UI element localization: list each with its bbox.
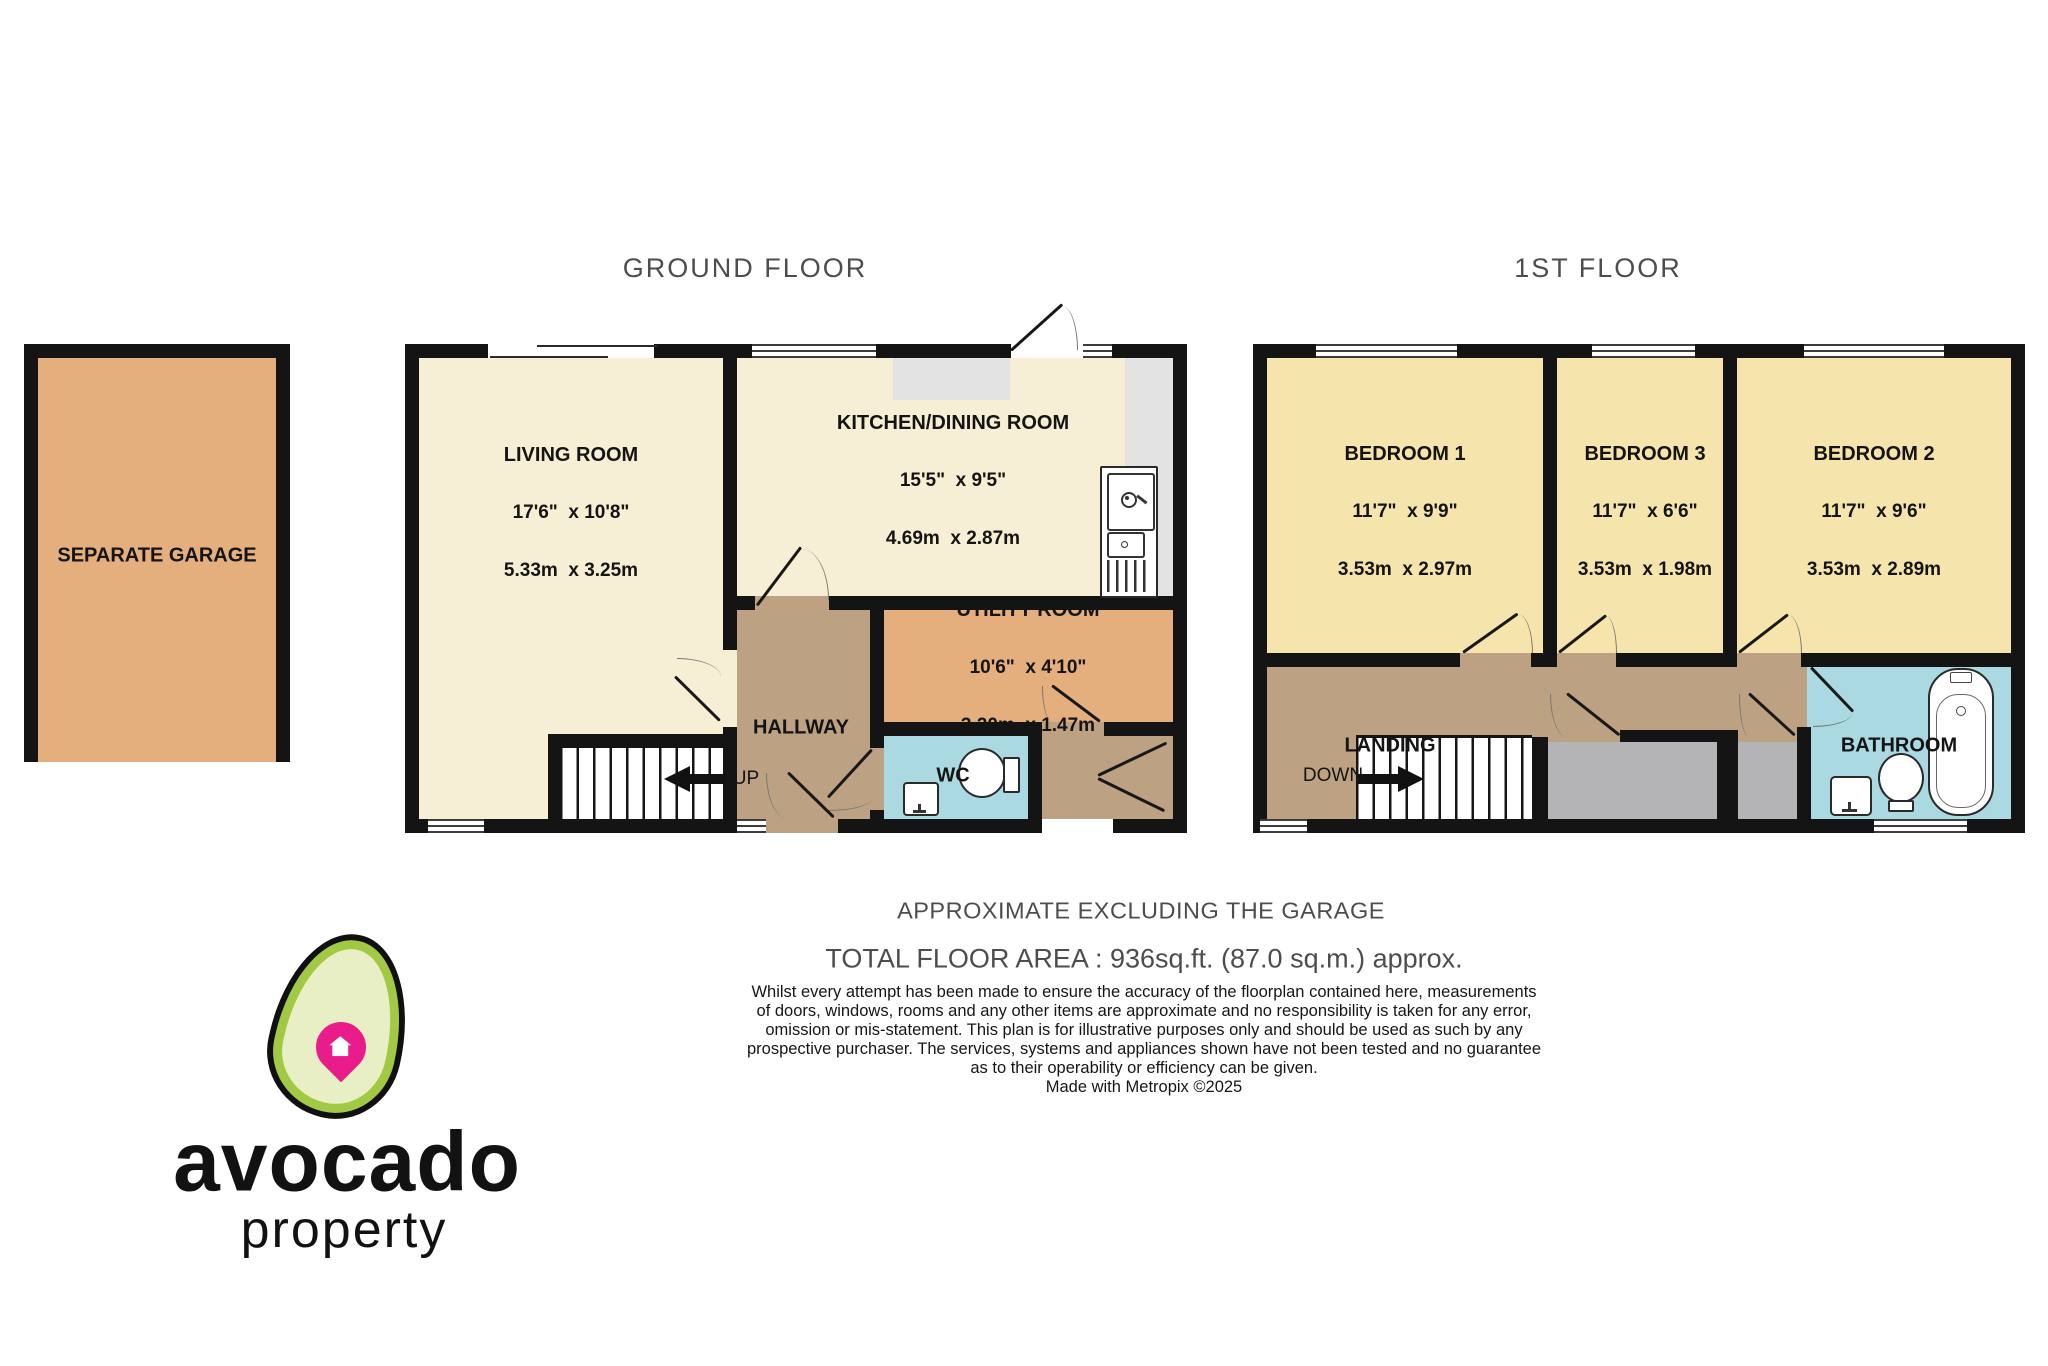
wall <box>1717 730 1738 819</box>
wall <box>723 358 737 650</box>
bedroom3-label: BEDROOM 3 11'7" x 6'6" 3.53m x 1.98m <box>1578 407 1712 617</box>
metropix-credit: Made with Metropix ©2025 <box>544 1078 1744 1097</box>
wall <box>1967 819 2025 833</box>
garage-label: SEPARATE GARAGE <box>57 545 256 568</box>
wall <box>1307 819 1874 833</box>
wall <box>870 810 884 819</box>
floorplan-canvas: GROUND FLOOR 1ST FLOOR SEPARATE GARAGE <box>0 0 2048 1366</box>
front-door-opening <box>766 819 838 833</box>
down-label: DOWN <box>1303 765 1363 787</box>
wall <box>1616 653 1737 667</box>
wall <box>1253 344 1316 358</box>
wall <box>1695 344 1804 358</box>
window <box>1316 344 1457 358</box>
back-door-opening <box>1042 819 1113 833</box>
wc-label: WC <box>936 765 969 788</box>
kitchen-sink-icon <box>1100 466 1158 598</box>
up-arrow-icon <box>690 774 726 784</box>
brand-name: avocado <box>173 1114 521 1211</box>
wall <box>870 596 884 748</box>
disclaimer-line: Whilst every attempt has been made to en… <box>544 983 1744 1002</box>
wall <box>1543 358 1557 667</box>
disclaimer-line: prospective purchaser. The services, sys… <box>544 1040 1744 1059</box>
wall <box>1113 819 1187 833</box>
door-opening <box>870 748 884 810</box>
utility-room-label: UTILITY ROOM 10'6" x 4'10" 3.20m x 1.47m <box>957 563 1100 773</box>
down-arrow-icon <box>1358 774 1398 784</box>
window <box>752 344 876 358</box>
house-icon <box>329 1036 351 1056</box>
down-arrow-icon <box>1398 766 1424 792</box>
landing-label: LANDING <box>1344 735 1435 758</box>
wall <box>484 819 737 833</box>
wall <box>548 748 560 819</box>
window <box>1874 819 1967 833</box>
approx-note: APPROXIMATE EXCLUDING THE GARAGE <box>897 898 1385 925</box>
total-floor-area: TOTAL FLOOR AREA : 936sq.ft. (87.0 sq.m.… <box>825 944 1462 975</box>
brand-subtitle: property <box>241 1200 448 1260</box>
wall <box>1457 344 1592 358</box>
bay-window <box>537 345 658 347</box>
window <box>1592 344 1695 358</box>
wall <box>2011 344 2025 833</box>
bay-window <box>490 356 608 358</box>
wall <box>1797 727 1811 819</box>
bedroom1-label: BEDROOM 1 11'7" x 9'9" 3.53m x 2.97m <box>1338 407 1472 617</box>
cupboard-floor <box>1548 742 1717 819</box>
wall <box>405 344 488 358</box>
wall <box>1532 737 1548 819</box>
disclaimer-line: omission or mis-statement. This plan is … <box>544 1021 1744 1040</box>
wall <box>1620 730 1717 742</box>
cupboard-floor <box>1738 742 1797 819</box>
up-arrow-icon <box>664 766 690 792</box>
wall <box>1944 344 2025 358</box>
door-opening <box>1460 653 1531 667</box>
wall <box>1173 344 1187 833</box>
wall <box>1531 653 1557 667</box>
wall <box>1112 344 1187 358</box>
ground-floor-title: GROUND FLOOR <box>623 253 868 284</box>
wall <box>1253 344 1267 833</box>
basin-icon <box>1830 776 1872 816</box>
wall <box>405 344 419 833</box>
bedroom2-label: BEDROOM 2 11'7" x 9'6" 3.53m x 2.89m <box>1807 407 1941 617</box>
wall <box>737 596 755 610</box>
door-opening <box>723 650 737 727</box>
window <box>1804 344 1944 358</box>
wall <box>1267 653 1460 667</box>
disclaimer-line: as to their operability or efficiency ca… <box>544 1059 1744 1078</box>
wall <box>548 734 723 748</box>
basin-icon <box>903 782 939 816</box>
wall <box>654 344 752 358</box>
hallway-label: HALLWAY <box>753 717 849 740</box>
door-arc <box>1062 306 1078 350</box>
door-opening <box>1557 653 1616 667</box>
kitchen-label: KITCHEN/DINING ROOM 15'5" x 9'5" 4.69m x… <box>837 376 1069 586</box>
wall <box>1801 653 2011 667</box>
bathroom-label: BATHROOM <box>1841 735 1957 758</box>
window <box>1260 819 1307 833</box>
toilet-seat-icon <box>1888 800 1914 812</box>
window <box>428 819 484 833</box>
up-label: UP <box>733 768 759 790</box>
wall <box>876 344 1011 358</box>
disclaimer-line: of doors, windows, rooms and any other i… <box>544 1002 1744 1021</box>
wall <box>405 819 428 833</box>
window <box>1083 344 1112 358</box>
wall <box>1104 722 1173 736</box>
disclaimer: Whilst every attempt has been made to en… <box>544 983 1744 1097</box>
wall <box>838 819 1042 833</box>
first-floor-title: 1ST FLOOR <box>1514 253 1682 284</box>
living-room-label: LIVING ROOM 17'6" x 10'8" 5.33m x 3.25m <box>504 408 638 618</box>
wall <box>1253 819 1260 833</box>
toilet-icon <box>1878 753 1924 803</box>
window <box>737 819 766 833</box>
wall <box>1723 358 1737 667</box>
door-opening <box>1737 653 1801 667</box>
